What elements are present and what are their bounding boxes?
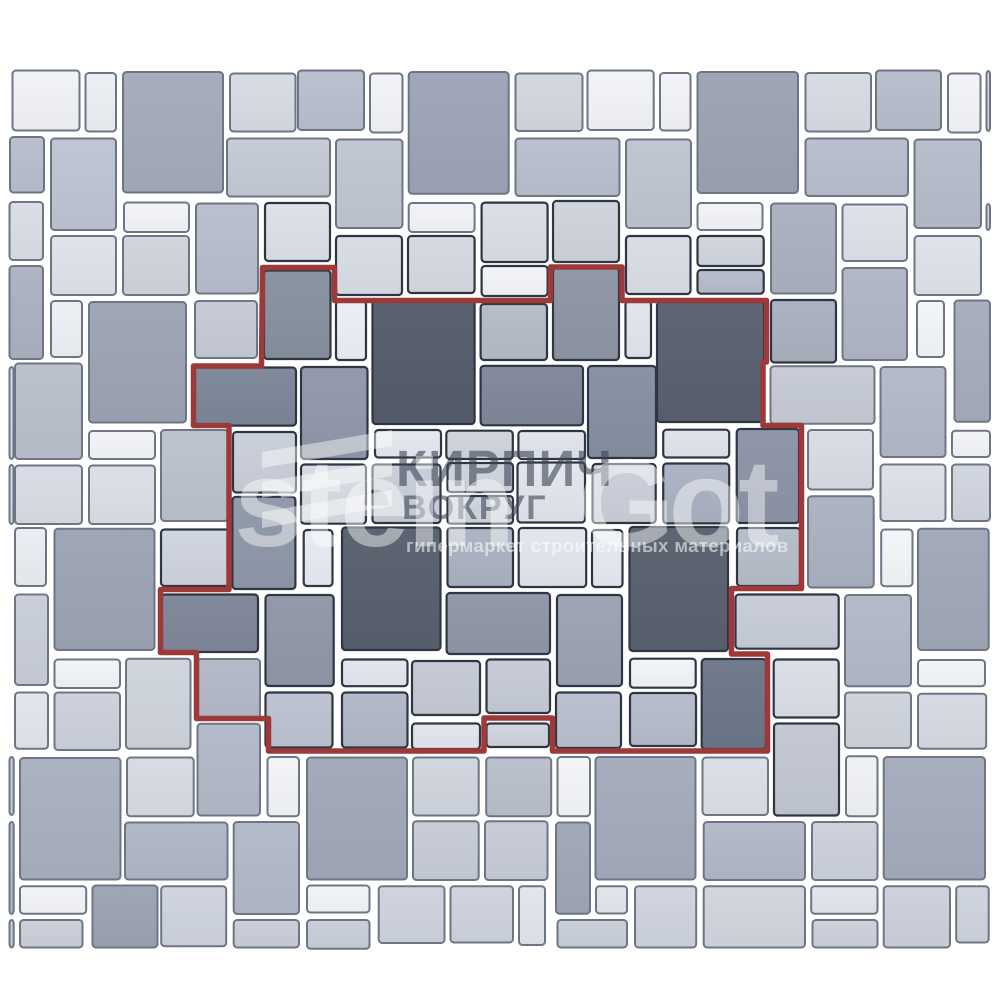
svg-text:гипермаркет строительных матер: гипермаркет строительных материалов xyxy=(406,535,789,556)
